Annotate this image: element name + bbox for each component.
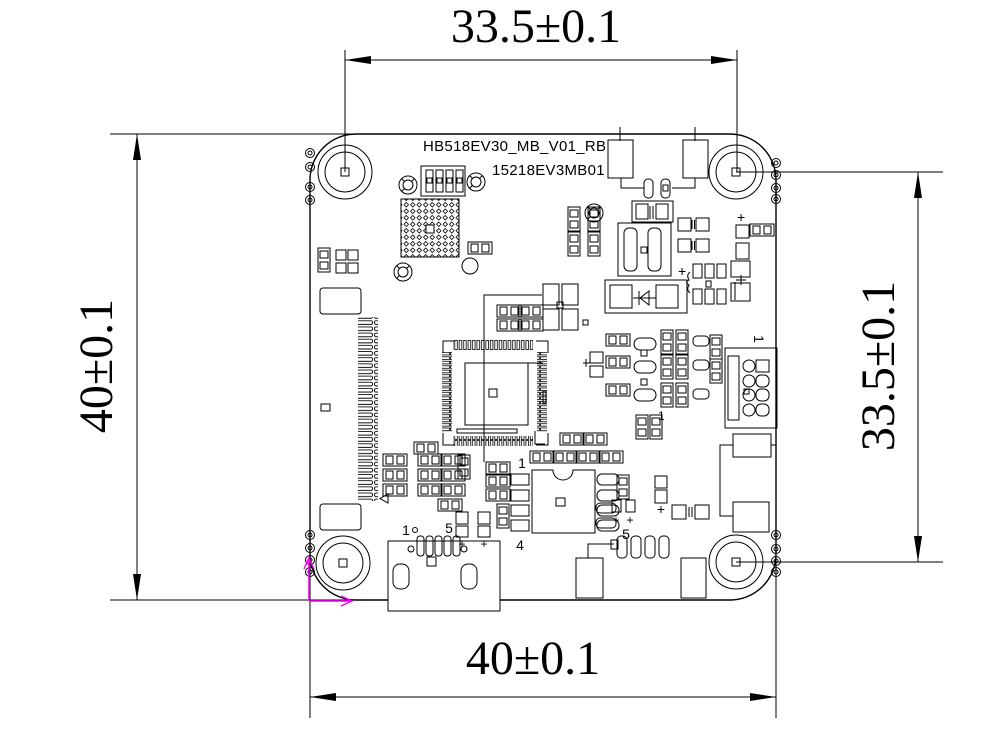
plus-mark: + [657, 501, 665, 517]
mounting-hole-bottom-left [316, 536, 370, 590]
resistor-stacks [568, 207, 600, 256]
pin1-triangle-marker [380, 494, 388, 503]
dimension-top-label: 33.5±0.1 [451, 0, 621, 53]
plus-mark: + [626, 513, 633, 527]
bga-via-array [401, 199, 459, 257]
dimension-bottom-label: 40±0.1 [466, 632, 600, 685]
passive-field-mid-right [583, 330, 722, 439]
plus-mark: + [612, 513, 619, 527]
tantalum-capacitors [456, 512, 490, 537]
plus-mark: + [458, 537, 465, 551]
dimension-left: 40±0.1 [70, 134, 358, 600]
plus-mark: + [737, 209, 745, 225]
passive-field-left-mid [383, 442, 510, 528]
screw-pad-3 [394, 263, 412, 281]
dimension-left-label: 40±0.1 [70, 299, 123, 433]
passive-cluster-top-left [318, 248, 358, 273]
soic-pin4-label: 4 [516, 537, 524, 553]
plus-mark: + [678, 263, 686, 279]
passive-component [468, 242, 492, 254]
diode-component [605, 280, 735, 313]
screw-pad-1 [399, 176, 417, 194]
pin-header-4 [421, 166, 465, 196]
soic-ic [511, 470, 619, 533]
right-connector [725, 348, 777, 428]
quad-pad-component [543, 284, 588, 330]
usb-pin5-label: 5 [445, 520, 453, 536]
dimension-right-label: 33.5±0.1 [852, 281, 905, 451]
test-point-circle [462, 258, 478, 274]
board-part-number: 15218EV3MB01 [492, 162, 605, 179]
pcb-dimension-drawing: 33.5±0.1 40±0.1 33.5±0.1 40±0.1 [0, 0, 990, 736]
capacitor-component [632, 201, 673, 222]
dimension-right: 33.5±0.1 [736, 172, 943, 562]
qfp-ic [442, 295, 548, 462]
passive-cluster-below-qfp [530, 431, 623, 463]
soic-pin5-label: 5 [622, 526, 630, 542]
right-side-pads [720, 434, 776, 532]
board-title: HB518EV30_MB_V01_RB [423, 138, 606, 155]
usb-pin1-label: 1 [402, 522, 410, 538]
electrolytic-capacitor [618, 223, 671, 276]
passive-cluster-mid [497, 305, 543, 331]
screw-pad-2 [467, 173, 485, 191]
power-pads [608, 140, 708, 198]
connector-pin1-label: 1 [751, 335, 767, 343]
bottom-mid-passives [576, 475, 709, 598]
soic-pin1-label: 1 [518, 455, 526, 471]
plus-mark: + [480, 537, 487, 551]
passive-cluster-top-right [678, 218, 774, 304]
ffc-connector [320, 288, 388, 530]
net-marker-1: 1 [658, 409, 665, 423]
